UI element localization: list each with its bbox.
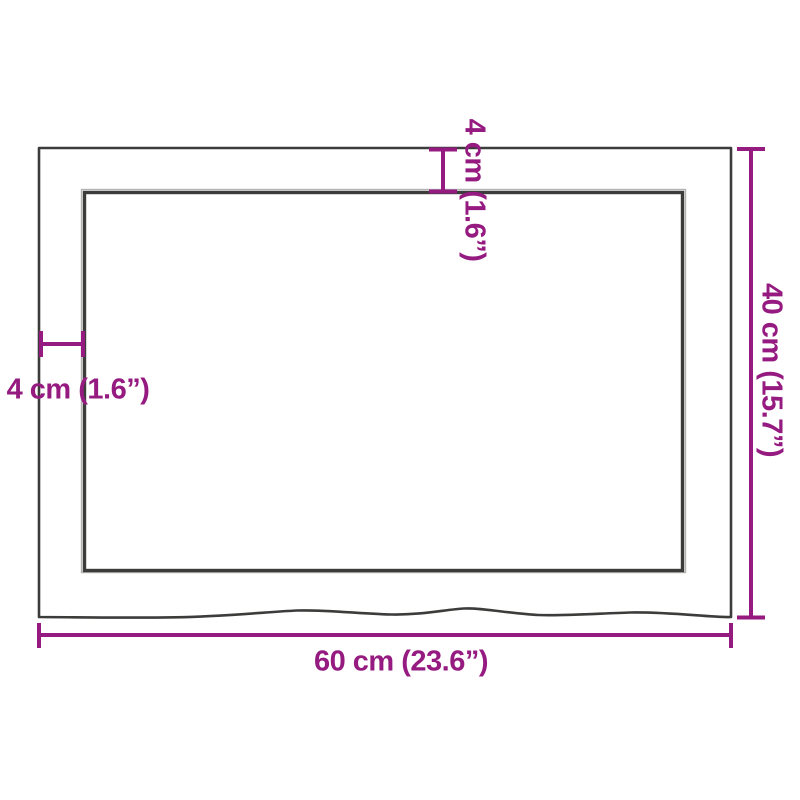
panel-inner-edge [85,193,683,571]
width-dimension-label: 60 cm (23.6”) [314,646,488,679]
tabletop-dimension-diagram: 4 cm (1.6”) 4 cm (1.6”) 40 cm (15.7”) 60… [0,0,800,800]
height-dimension-label: 40 cm (15.7”) [755,283,788,457]
thickness-top-dimension-label: 4 cm (1.6”) [458,119,491,262]
thickness-left-dimension-label: 4 cm (1.6”) [7,374,150,407]
width-dimension-line [39,623,731,648]
